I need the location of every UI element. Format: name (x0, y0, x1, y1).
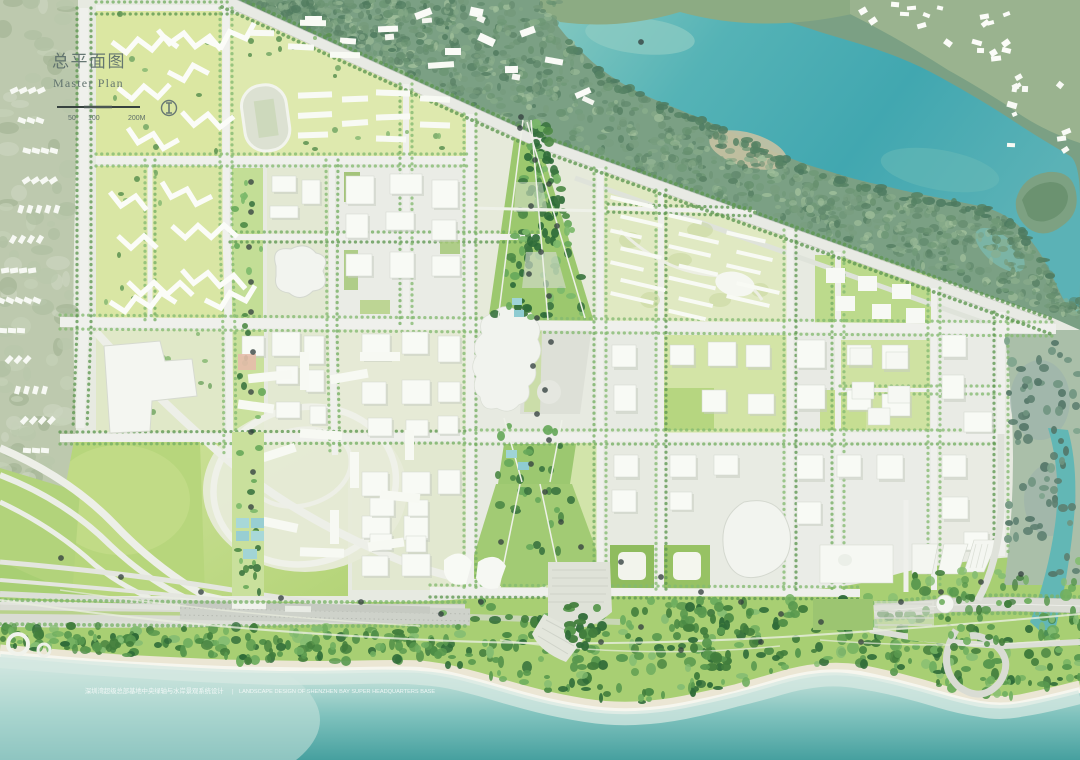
svg-text:200M: 200M (128, 115, 146, 122)
svg-text:100: 100 (88, 115, 100, 122)
svg-text:Master Plan: Master Plan (53, 76, 124, 90)
svg-text:50: 50 (68, 115, 76, 122)
svg-text:LANDSCAPE DESIGN OF SHENZHEN B: LANDSCAPE DESIGN OF SHENZHEN BAY SUPER H… (239, 689, 435, 695)
svg-text:总平面图: 总平面图 (52, 52, 126, 71)
svg-text:深圳湾超级总部基地中央绿轴与水岸景观系统设计: 深圳湾超级总部基地中央绿轴与水岸景观系统设计 (85, 686, 224, 695)
